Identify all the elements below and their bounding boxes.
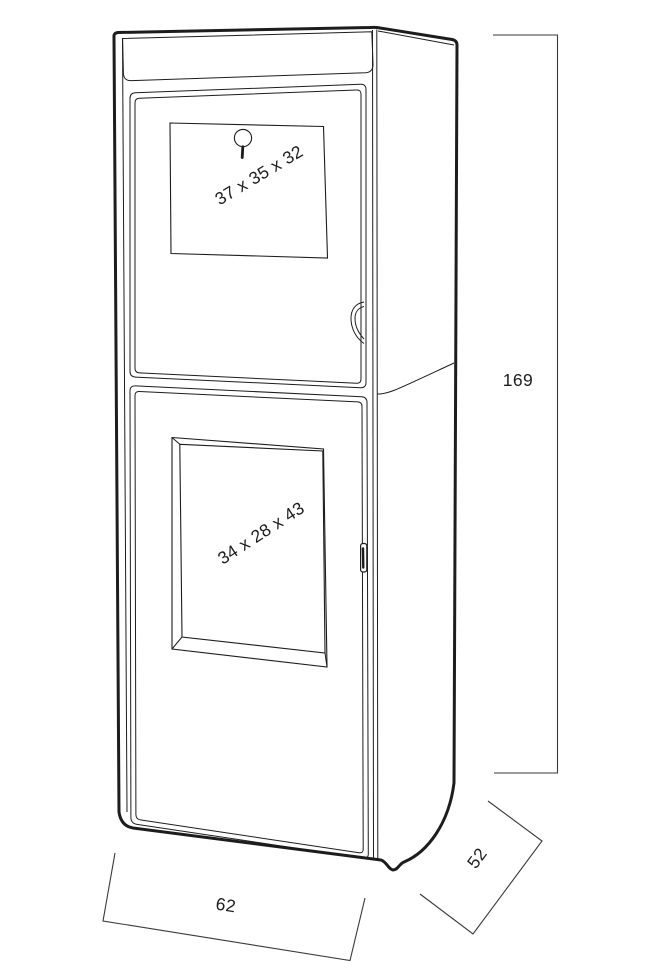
dimension-width-value: 62: [214, 894, 237, 917]
cabinet: 37 x 35 x 32: [114, 27, 457, 870]
lower-door-outer-frame: [130, 386, 368, 858]
upper-door: 37 x 35 x 32: [130, 84, 366, 387]
dimension-depth-value: 52: [463, 844, 491, 872]
keyhole-icon: [234, 129, 251, 157]
parcel-box-technical-drawing: 37 x 35 x 32: [0, 0, 658, 970]
lower-door: 34 x 28 x 43: [130, 386, 368, 858]
dimension-height-line: [493, 35, 558, 773]
front-right-frame-line: [373, 30, 374, 860]
side-divider-line: [377, 363, 454, 394]
dimension-annotations: 169 62 52: [103, 35, 558, 961]
upper-compartment-size-label: 37 x 35 x 32: [211, 141, 306, 209]
lower-door-handle: [361, 544, 367, 573]
technical-drawing-page: 37 x 35 x 32: [0, 0, 658, 970]
dimension-height: 169: [493, 35, 558, 773]
upper-door-handle: [351, 302, 364, 344]
front-left-frame-line: [123, 38, 128, 812]
lower-door-inner-frame: [135, 391, 363, 852]
dimension-height-value: 169: [503, 370, 533, 390]
top-cap: [123, 32, 373, 81]
dimension-width: 62: [103, 853, 365, 961]
front-right-frame-line-2: [377, 30, 378, 862]
upper-door-outer-frame: [130, 84, 366, 387]
lower-compartment-size-label: 34 x 28 x 43: [214, 498, 308, 569]
dimension-depth: 52: [420, 801, 542, 934]
